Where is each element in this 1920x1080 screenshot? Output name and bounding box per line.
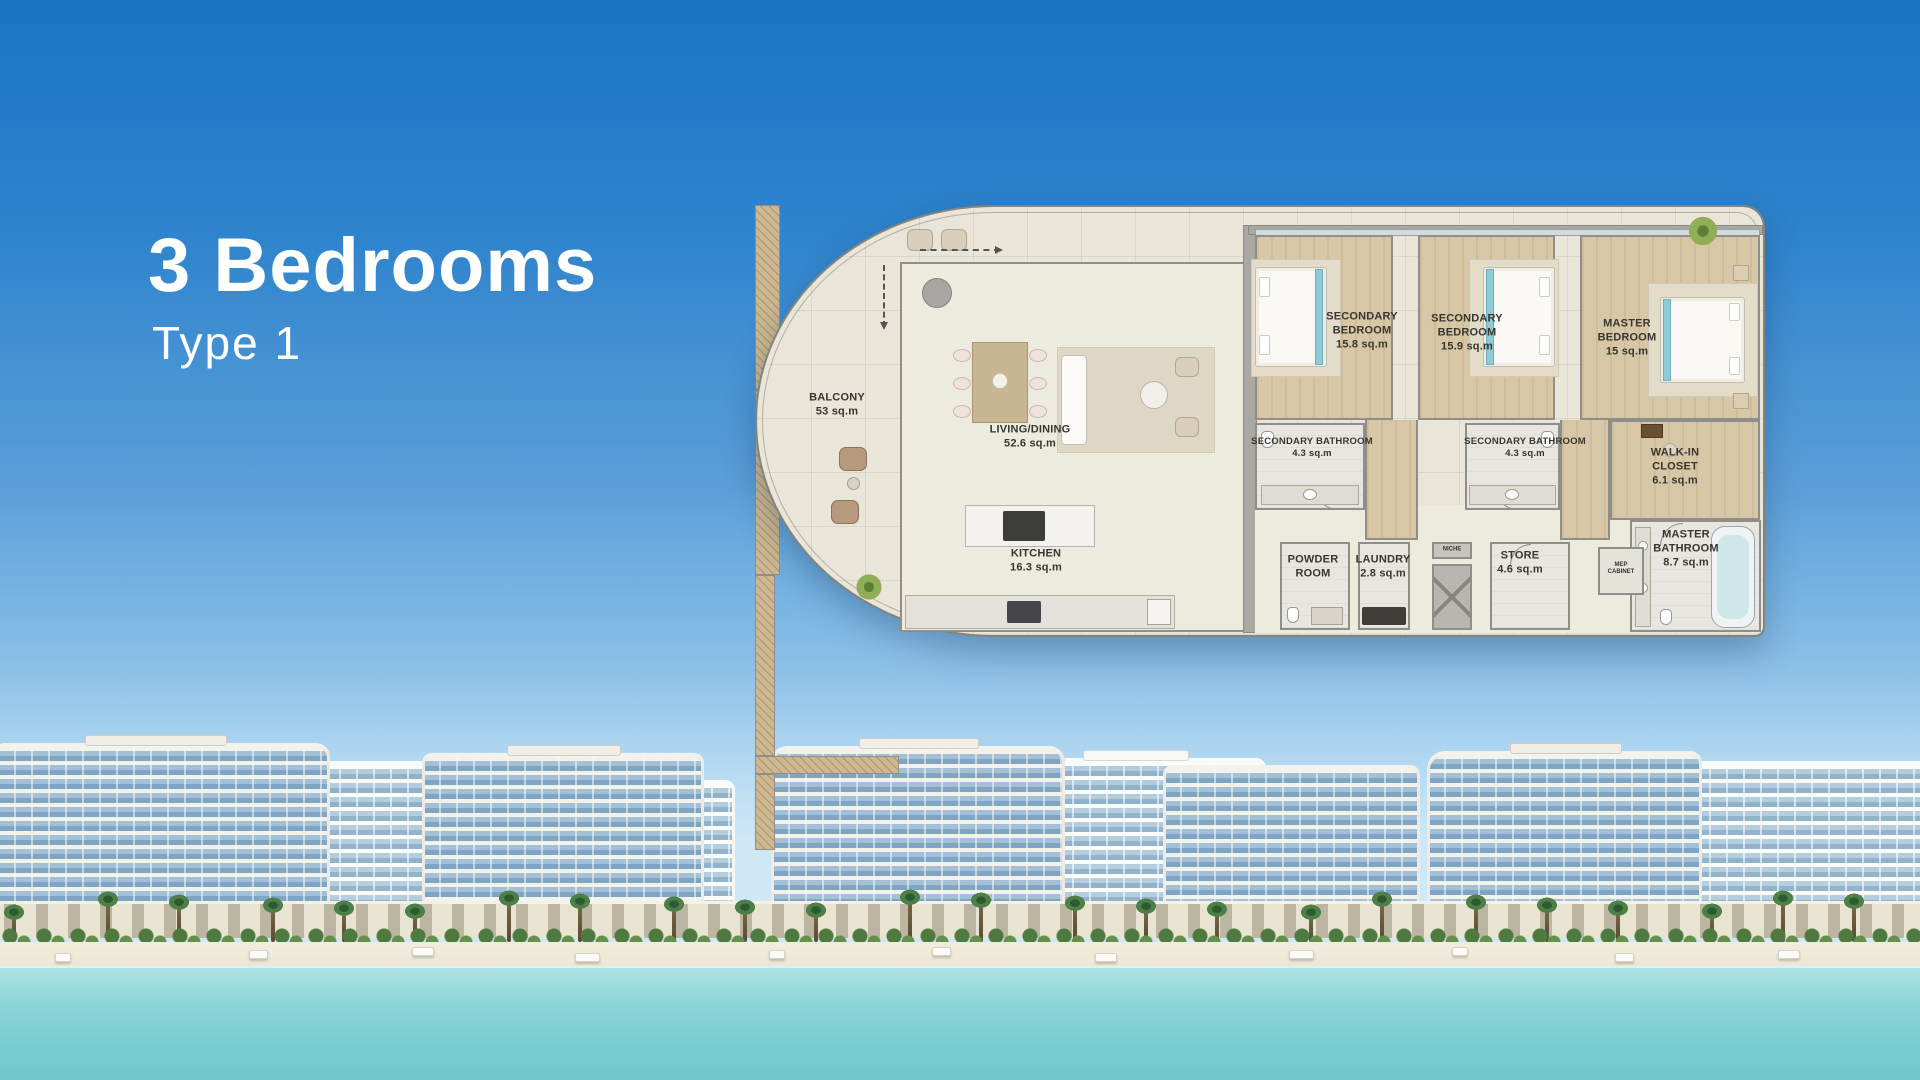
room-label-niche: NICHE bbox=[1443, 546, 1462, 553]
bed-runner bbox=[1663, 299, 1671, 381]
building bbox=[1427, 751, 1702, 908]
bedroom-corridor bbox=[1365, 420, 1418, 540]
beach-cabana bbox=[1452, 947, 1468, 956]
dining-chair bbox=[953, 349, 971, 362]
room-label-kitchen: KITCHEN 16.3 sq.m bbox=[1010, 547, 1062, 575]
entry-arrow-down bbox=[883, 265, 885, 327]
room-label-secondary-bathroom-1: SECONDARY BATHROOM 4.3 sq.m bbox=[1251, 436, 1373, 460]
room-label-mep-cabinet: MEP CABINET bbox=[1606, 562, 1636, 576]
nightstand bbox=[1733, 393, 1749, 409]
room-label-secondary-bathroom-2: SECONDARY BATHROOM 4.3 sq.m bbox=[1464, 436, 1586, 460]
beach-cabana bbox=[1778, 950, 1800, 959]
service-shaft bbox=[1432, 564, 1472, 630]
beach-cabana bbox=[412, 947, 434, 956]
floor-plan: BALCONY 53 sq.m LIVING/DINING 52.6 sq.m … bbox=[755, 205, 1765, 637]
sink bbox=[1303, 489, 1317, 500]
roof-structure bbox=[85, 735, 227, 746]
coffee-table bbox=[1140, 381, 1168, 409]
page-subtitle: Type 1 bbox=[152, 320, 597, 366]
roof-structure bbox=[507, 745, 622, 756]
room-label-master-bedroom: MASTER BEDROOM 15 sq.m bbox=[1593, 317, 1661, 358]
bed-pillow bbox=[1729, 303, 1740, 321]
page: 3 Bedrooms Type 1 bbox=[0, 0, 1920, 1080]
bed-pillow bbox=[1259, 335, 1270, 355]
room-label-balcony: BALCONY 53 sq.m bbox=[809, 391, 865, 419]
roof-structure bbox=[1510, 743, 1622, 754]
dresser bbox=[1641, 424, 1663, 438]
armchair bbox=[1175, 357, 1199, 377]
roof-structure bbox=[1083, 750, 1190, 761]
palm-plant-icon bbox=[1685, 213, 1721, 249]
fridge bbox=[1147, 599, 1171, 625]
wardrobe bbox=[755, 575, 775, 756]
page-title: 3 Bedrooms bbox=[148, 228, 597, 304]
dining-chair bbox=[1029, 405, 1047, 418]
closet-shelves bbox=[755, 756, 899, 774]
beach-cabana bbox=[249, 950, 268, 959]
palm-plant-icon bbox=[853, 571, 885, 603]
dining-chair bbox=[953, 405, 971, 418]
structural-column bbox=[922, 278, 952, 308]
kitchen-sink bbox=[1007, 601, 1041, 623]
dining-chair bbox=[1029, 377, 1047, 390]
roof-structure bbox=[859, 738, 979, 749]
terrace-lounger bbox=[907, 229, 933, 251]
balcony-armchair bbox=[839, 447, 867, 471]
beach-cabana bbox=[1289, 950, 1314, 959]
beach-cabana bbox=[932, 947, 951, 956]
nightstand bbox=[1733, 265, 1749, 281]
bed-pillow bbox=[1539, 335, 1550, 355]
beach-cabana bbox=[55, 953, 71, 962]
toilet bbox=[1660, 609, 1672, 625]
side-table bbox=[847, 477, 860, 490]
dining-chair bbox=[1029, 349, 1047, 362]
room-label-living-dining: LIVING/DINING 52.6 sq.m bbox=[990, 423, 1071, 451]
beach-cabana bbox=[575, 953, 600, 962]
beach-cabana bbox=[1095, 953, 1117, 962]
balcony-armchair bbox=[831, 500, 859, 524]
sink-counter bbox=[1311, 607, 1343, 625]
entry-arrow-right bbox=[920, 249, 1000, 251]
beach-cabana bbox=[1615, 953, 1634, 962]
sink bbox=[1505, 489, 1519, 500]
dining-chair bbox=[953, 377, 971, 390]
room-label-store: STORE 4.6 sq.m bbox=[1497, 549, 1543, 577]
lagoon-water bbox=[0, 966, 1920, 1080]
bed-pillow bbox=[1539, 277, 1550, 297]
table-centerpiece bbox=[992, 373, 1008, 389]
bed-runner bbox=[1315, 269, 1323, 365]
building bbox=[422, 753, 704, 908]
closet-shelves bbox=[755, 774, 775, 850]
room-label-master-bathroom: MASTER BATHROOM 8.7 sq.m bbox=[1649, 528, 1723, 569]
room-label-powder-room: POWDER ROOM bbox=[1285, 553, 1341, 581]
stove-cooktop bbox=[1003, 511, 1045, 541]
bed-pillow bbox=[1259, 277, 1270, 297]
room-label-laundry: LAUNDRY 2.8 sq.m bbox=[1355, 553, 1411, 581]
hero-text: 3 Bedrooms Type 1 bbox=[148, 228, 597, 366]
armchair bbox=[1175, 417, 1199, 437]
room-label-secondary-bedroom-2: SECONDARY BEDROOM 15.9 sq.m bbox=[1428, 312, 1506, 353]
bed-pillow bbox=[1729, 357, 1740, 375]
room-label-secondary-bedroom-1: SECONDARY BEDROOM 15.8 sq.m bbox=[1323, 310, 1401, 351]
toilet bbox=[1287, 607, 1299, 623]
washing-machine bbox=[1362, 607, 1406, 625]
building bbox=[0, 743, 330, 908]
room-label-walk-in-closet: WALK-IN CLOSET 6.1 sq.m bbox=[1644, 446, 1706, 487]
terrace-lounger bbox=[941, 229, 967, 251]
beach-cabana bbox=[769, 950, 785, 959]
